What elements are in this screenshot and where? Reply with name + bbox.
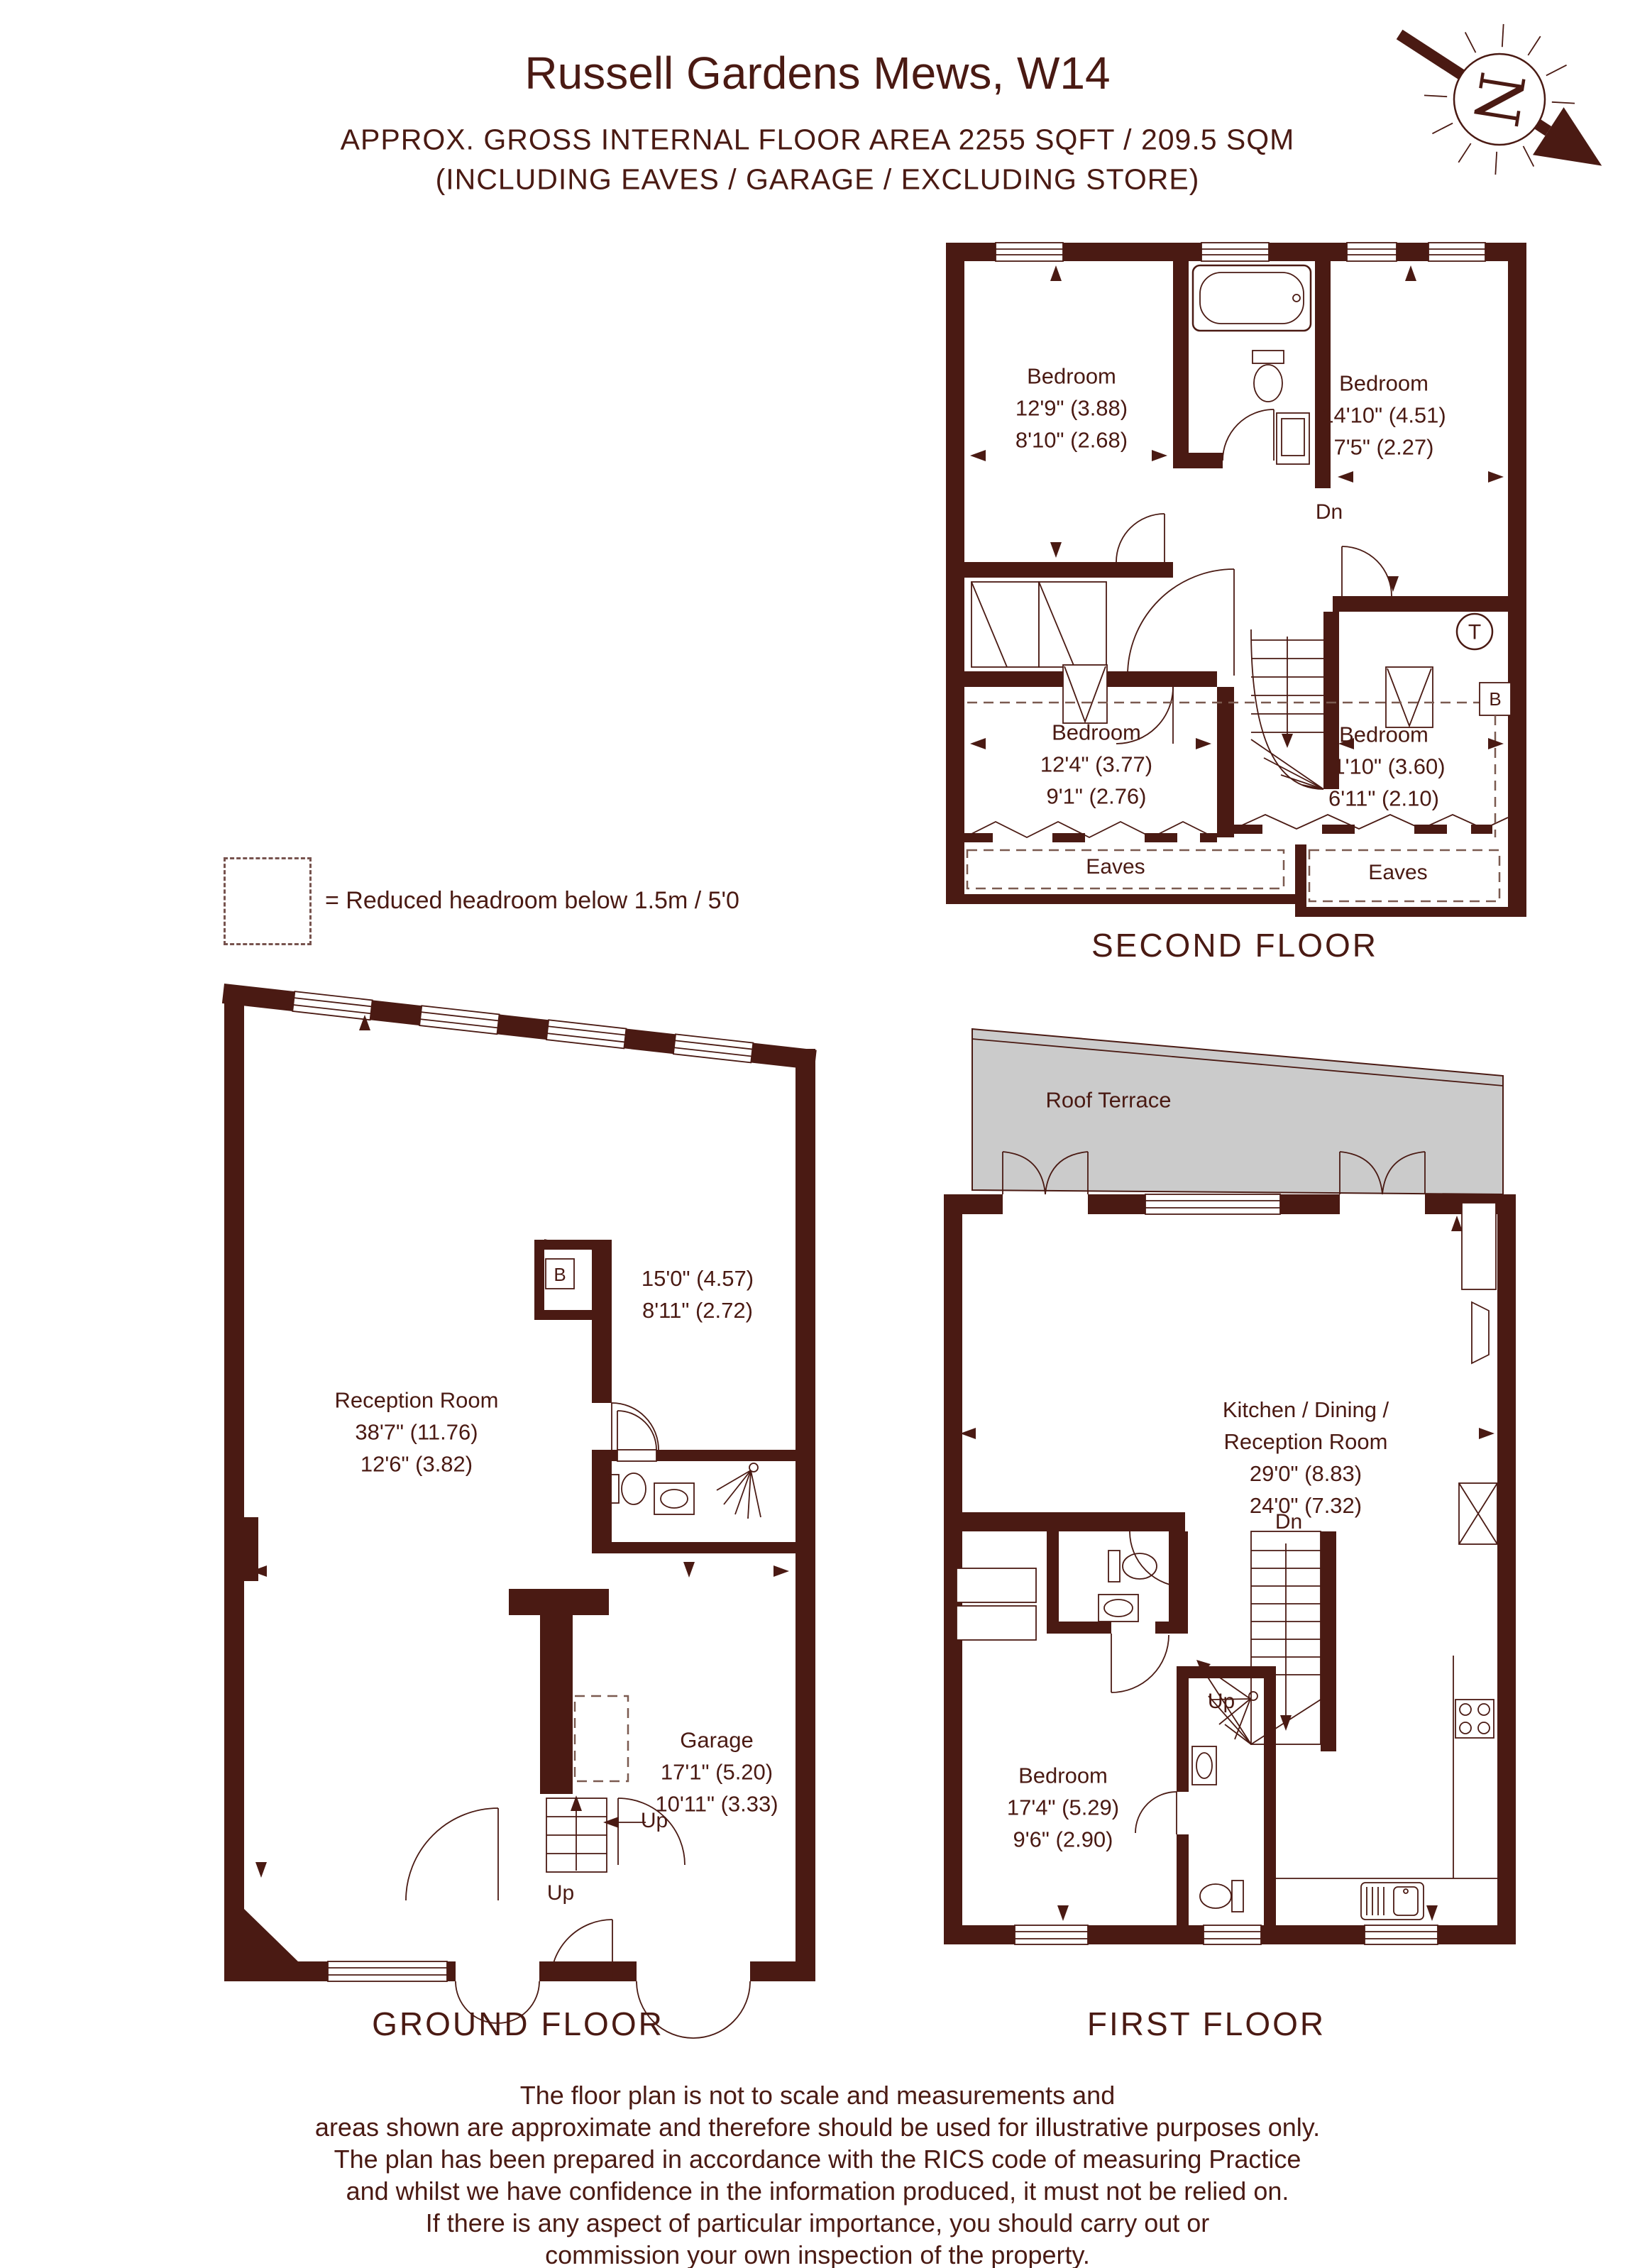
north-arrow-icon: N (1380, 7, 1632, 216)
eaves-label-left: Eaves (1086, 855, 1145, 879)
room-label-bedroom-4: Bedroom 11'10" (3.60) 6'11" (2.10) (1322, 719, 1445, 815)
floor-area-subtitle: APPROX. GROSS INTERNAL FLOOR AREA 2255 S… (341, 123, 1295, 157)
sink-icon (1099, 1595, 1138, 1622)
cupboard (1462, 1203, 1496, 1289)
shower-icon (717, 1463, 761, 1519)
room-label-garage: Garage 17'1" (5.20) 10'11" (3.33) (655, 1724, 778, 1820)
disclaimer-line: commission your own inspection of the pr… (0, 2239, 1635, 2268)
boiler-letter-ground: B (554, 1264, 566, 1285)
disclaimer-line: The plan has been prepared in accordance… (0, 2143, 1635, 2175)
floorplan-page: Russell Gardens Mews, W14 APPROX. GROSS … (0, 0, 1635, 2268)
room-label-bedroom-1: Bedroom 12'9" (3.88) 8'10" (2.68) (1015, 360, 1128, 456)
room-label-bedroom-2: Bedroom 14'10" (4.51) 7'5" (2.27) (1321, 368, 1446, 463)
bathtub-icon (1193, 265, 1311, 331)
sink-icon (1277, 413, 1309, 464)
stair-up-label-1: Up (547, 1881, 574, 1905)
window (1015, 1925, 1438, 1944)
page-title: Russell Gardens Mews, W14 (524, 47, 1110, 99)
thermostat-letter: T (1468, 621, 1481, 644)
wc-room (592, 1411, 796, 1553)
room-label-reception: Reception Room 38'7" (11.76) 12'6" (3.82… (335, 1385, 499, 1480)
eaves-label-right: Eaves (1368, 861, 1427, 885)
disclaimer-line: areas shown are approximate and therefor… (0, 2111, 1635, 2143)
second-floor-plan: T B (946, 243, 1526, 924)
roof-terrace-label: Roof Terrace (1046, 1084, 1172, 1116)
sink-icon (654, 1483, 694, 1514)
compass-north-letter: N (1459, 67, 1538, 131)
second-floor-title: SECOND FLOOR (1091, 926, 1378, 964)
closet (957, 1606, 1036, 1640)
room-label-kitchen: Kitchen / Dining / Reception Room 29'0" … (1223, 1394, 1389, 1521)
toilet-icon (1200, 1881, 1243, 1912)
stair-up-label-first: Up (1208, 1690, 1235, 1714)
stair-dn-label-second: Dn (1316, 500, 1343, 524)
disclaimer-line: and whilst we have confidence in the inf… (0, 2175, 1635, 2207)
toilet-icon (1108, 1551, 1157, 1582)
ground-floor-title: GROUND FLOOR (372, 2005, 664, 2043)
floor-area-subtitle-2: (INCLUDING EAVES / GARAGE / EXCLUDING ST… (436, 163, 1200, 197)
hob-icon (1455, 1700, 1494, 1738)
kitchen-sink-icon (1361, 1883, 1424, 1920)
stair-up-label-2: Up (641, 1809, 668, 1833)
ground-floor-plan: B (220, 978, 820, 2046)
disclaimer: The floor plan is not to scale and measu… (0, 2079, 1635, 2268)
kitchen-counter (1276, 1656, 1497, 1920)
boiler-letter: B (1489, 688, 1501, 710)
toilet-icon (609, 1473, 646, 1504)
eaves-windows (964, 815, 1508, 842)
room-label-back-room: 15'0" (4.57) 8'11" (2.72) (642, 1262, 754, 1326)
chimney-recess (1472, 1302, 1489, 1363)
staircase-up (546, 1795, 607, 1872)
disclaimer-line: If there is any aspect of particular imp… (0, 2207, 1635, 2239)
appliance-unit (1459, 1483, 1497, 1544)
first-floor-title: FIRST FLOOR (1087, 2005, 1326, 2043)
wc-room-first (1047, 1531, 1188, 1692)
reduced-headroom-legend-swatch (224, 857, 312, 945)
room-label-bedroom-3: Bedroom 12'4" (3.77) 9'1" (2.76) (1040, 717, 1152, 813)
closet (957, 1568, 1036, 1602)
stair-dn-label-first: Dn (1275, 1510, 1302, 1534)
disclaimer-line: The floor plan is not to scale and measu… (0, 2079, 1635, 2111)
reduced-headroom-legend-text: = Reduced headroom below 1.5m / 5'0 (325, 887, 739, 915)
shower-room (1135, 1666, 1276, 1925)
closet (971, 582, 1106, 667)
room-label-bedroom-first: Bedroom 17'4" (5.29) 9'6" (2.90) (1007, 1760, 1119, 1856)
toilet-icon (1253, 351, 1284, 402)
sink-icon (1192, 1746, 1216, 1785)
